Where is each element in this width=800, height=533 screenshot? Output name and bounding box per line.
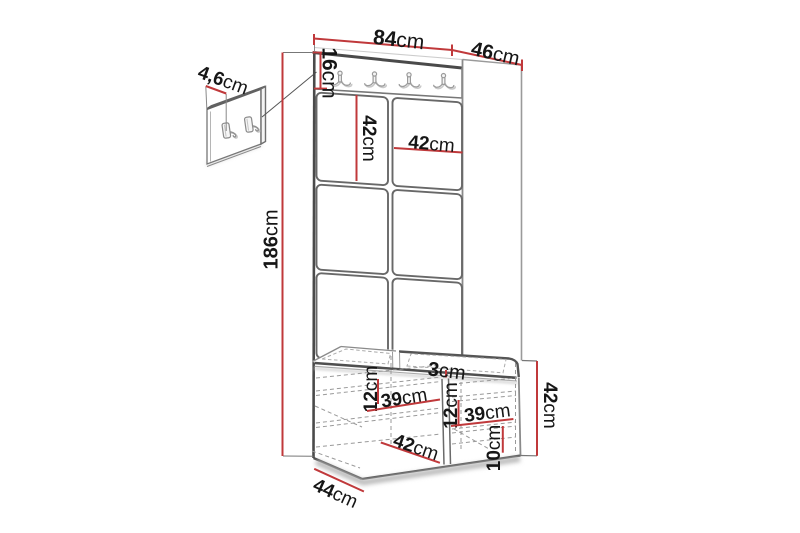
svg-text:10cm: 10cm bbox=[484, 425, 505, 471]
svg-text:16cm: 16cm bbox=[318, 47, 341, 98]
svg-text:3cm: 3cm bbox=[427, 358, 467, 384]
svg-text:46cm: 46cm bbox=[469, 38, 522, 70]
svg-text:42cm: 42cm bbox=[390, 430, 441, 465]
svg-text:84cm: 84cm bbox=[372, 26, 426, 55]
svg-text:12cm: 12cm bbox=[361, 366, 382, 412]
svg-text:42cm: 42cm bbox=[539, 382, 560, 428]
svg-text:12cm: 12cm bbox=[441, 382, 462, 428]
svg-text:186cm: 186cm bbox=[261, 209, 283, 269]
svg-text:42cm: 42cm bbox=[407, 132, 455, 157]
svg-text:39cm: 39cm bbox=[380, 385, 429, 413]
svg-text:4,6cm: 4,6cm bbox=[195, 62, 251, 99]
svg-text:42cm: 42cm bbox=[358, 115, 379, 161]
